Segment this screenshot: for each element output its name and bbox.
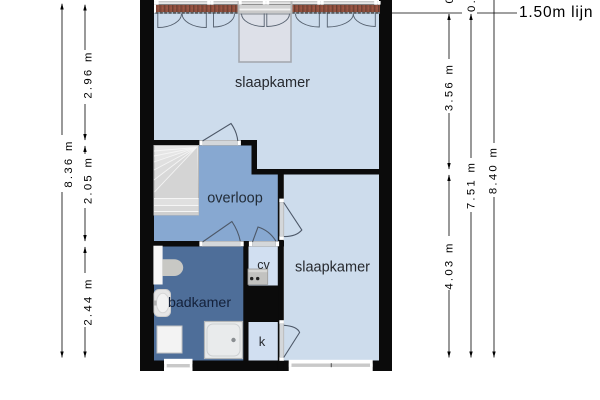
svg-text:7.51 m: 7.51 m	[466, 161, 478, 209]
svg-text:8.40 m: 8.40 m	[488, 146, 500, 194]
svg-text:k: k	[259, 334, 266, 349]
svg-text:8.36 m: 8.36 m	[63, 139, 75, 187]
svg-text:3.56 m: 3.56 m	[444, 63, 456, 111]
svg-text:cv: cv	[257, 258, 270, 272]
svg-text:slaapkamer: slaapkamer	[295, 260, 370, 276]
svg-text:1.50m lijn: 1.50m lijn	[519, 4, 593, 21]
svg-text:2.96 m: 2.96 m	[83, 50, 95, 98]
svg-text:overloop: overloop	[207, 191, 263, 207]
svg-text:slaapkamer: slaapkamer	[235, 75, 310, 91]
svg-text:4.03 m: 4.03 m	[444, 241, 456, 289]
svg-text:2.44 m: 2.44 m	[83, 277, 95, 325]
svg-text:0.44 m: 0.44 m	[466, 0, 478, 12]
svg-text:badkamer: badkamer	[168, 295, 231, 311]
svg-text:0.46 m: 0.46 m	[444, 0, 456, 4]
svg-text:2.05 m: 2.05 m	[83, 156, 95, 204]
